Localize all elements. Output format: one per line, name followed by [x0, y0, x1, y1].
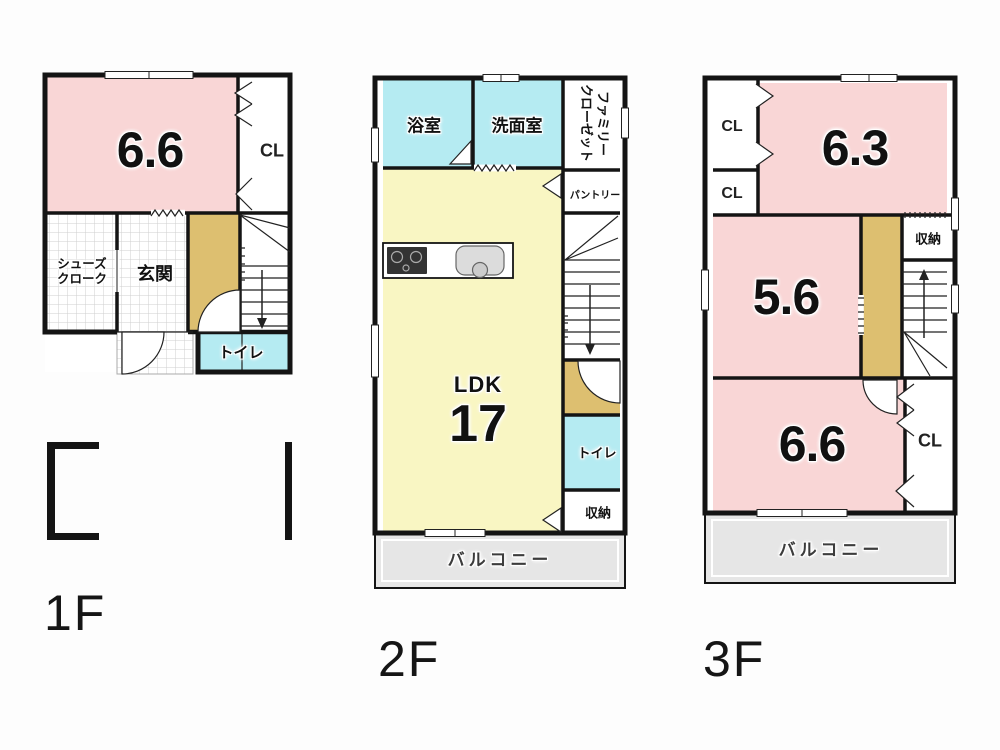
shoes-closet-label: シューズ クローク	[57, 257, 107, 287]
stairs-area-2f	[563, 213, 620, 360]
entrance-label: 玄関	[137, 260, 173, 286]
closet-top-label-3f: CL	[721, 118, 742, 136]
toilet-label-1f: トイレ	[218, 342, 263, 363]
closet-mid-label-3f: CL	[721, 185, 742, 203]
room-size-66-3f: 6.6	[779, 415, 846, 473]
opening-zigzag-2f	[474, 165, 516, 172]
room-size-bedroom-1f: 6.6	[117, 121, 184, 179]
room-ldk	[383, 168, 563, 533]
opening-zigzag-1f	[151, 210, 185, 217]
ldk-size: 17	[449, 394, 507, 454]
parking-outline-1f	[40, 435, 300, 550]
washroom-label: 洗面室	[492, 112, 543, 137]
family-closet-label: ファミリー クローゼット	[578, 84, 611, 162]
pantry-label: パントリー	[570, 187, 621, 202]
closet-label-1f: CL	[260, 141, 284, 162]
storage-label-3f: 収納	[915, 229, 941, 248]
floor-label-2f: 2F	[378, 630, 440, 688]
bathroom-label: 浴室	[407, 112, 441, 137]
closet-right-label-3f: CL	[918, 431, 942, 452]
kitchen-counter-icon	[383, 243, 513, 278]
room-size-63: 6.3	[822, 119, 889, 177]
window-top-1f	[105, 72, 193, 79]
balcony-label-2f: バルコニー	[448, 546, 553, 571]
floor-plan-canvas: 6.6 CL シューズ クローク 玄関 トイレ 1F 浴室 洗面室 ファミリー …	[0, 0, 1000, 750]
storage-label-2f: 収納	[585, 503, 611, 522]
sliding-door-icon-1f	[115, 250, 120, 292]
room-size-56: 5.6	[753, 268, 820, 326]
balcony-label-3f: バルコニー	[779, 536, 884, 561]
floor-label-3f: 3F	[703, 630, 765, 688]
hall-3f	[861, 215, 902, 378]
floor-label-1f: 1F	[44, 584, 106, 642]
toilet-label-2f: トイレ	[577, 443, 616, 462]
sliding-door-icon-3f	[858, 295, 864, 335]
